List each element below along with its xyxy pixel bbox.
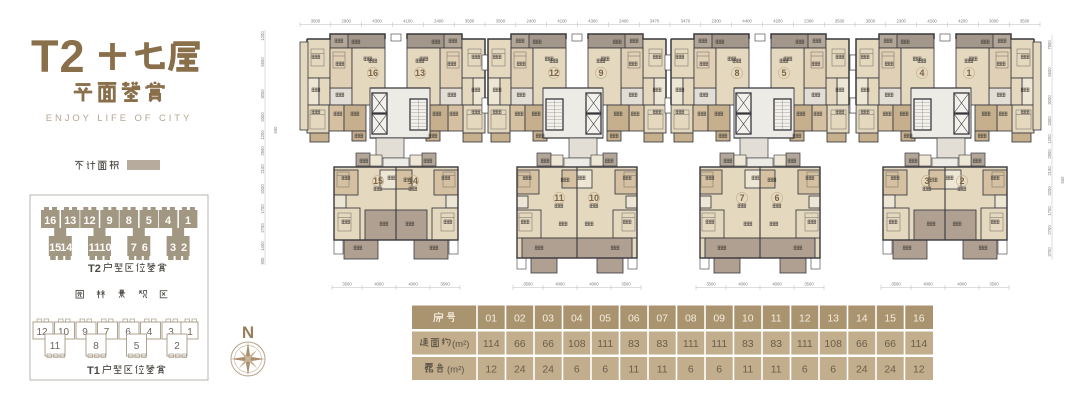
svg-text:66: 66: [884, 338, 896, 350]
svg-text:T1: T1: [87, 365, 100, 377]
svg-text:6: 6: [142, 242, 148, 254]
svg-text:3500: 3500: [706, 282, 716, 287]
svg-text:4100: 4100: [403, 19, 413, 24]
svg-text:11: 11: [50, 341, 61, 352]
svg-text:4000: 4000: [772, 282, 782, 287]
svg-text:1700: 1700: [1047, 206, 1052, 216]
svg-text:4000: 4000: [589, 282, 599, 287]
svg-text:3500: 3500: [621, 282, 631, 287]
svg-text:16: 16: [44, 215, 56, 227]
svg-text:108: 108: [568, 338, 586, 350]
svg-text:7900: 7900: [1047, 40, 1052, 50]
svg-text:04: 04: [571, 313, 583, 325]
svg-text:4300: 4300: [372, 19, 382, 24]
svg-text:13: 13: [64, 215, 76, 227]
svg-text:4300: 4300: [588, 19, 598, 24]
svg-text:1200: 1200: [1047, 134, 1052, 144]
svg-text:3300: 3300: [1047, 116, 1052, 126]
svg-text:11: 11: [628, 364, 639, 376]
svg-text:2900: 2900: [1047, 149, 1052, 159]
svg-text:12: 12: [913, 364, 925, 376]
svg-text:12: 12: [799, 313, 811, 325]
svg-text:111: 111: [683, 338, 699, 350]
svg-text:24: 24: [514, 364, 526, 376]
svg-text:12: 12: [83, 215, 95, 227]
svg-text:2900: 2900: [260, 146, 265, 156]
svg-text:4000: 4000: [923, 282, 933, 287]
svg-text:12: 12: [485, 364, 497, 376]
svg-text:2700: 2700: [260, 223, 265, 233]
svg-text:2300: 2300: [712, 19, 722, 24]
svg-text:3500: 3500: [440, 282, 450, 287]
svg-text:01: 01: [485, 313, 497, 325]
svg-text:1200: 1200: [260, 31, 265, 41]
svg-text:6: 6: [830, 364, 836, 376]
svg-text:600: 600: [273, 126, 278, 134]
svg-text:24: 24: [856, 364, 868, 376]
svg-text:14: 14: [856, 313, 868, 325]
svg-text:6: 6: [774, 193, 779, 203]
svg-text:111: 111: [711, 338, 727, 350]
svg-text:02: 02: [514, 313, 526, 325]
svg-text:T2: T2: [88, 263, 101, 275]
svg-text:4200: 4200: [773, 19, 783, 24]
svg-text:05: 05: [599, 313, 611, 325]
svg-text:4000: 4000: [738, 282, 748, 287]
svg-text:3470: 3470: [650, 19, 660, 24]
svg-text:600: 600: [1060, 176, 1065, 184]
svg-text:16: 16: [913, 313, 925, 325]
svg-text:3700: 3700: [1047, 247, 1052, 257]
svg-text:9: 9: [106, 215, 112, 227]
svg-text:2: 2: [174, 341, 180, 352]
svg-text:6: 6: [802, 364, 808, 376]
svg-text:08: 08: [685, 313, 697, 325]
svg-text:8: 8: [93, 341, 99, 352]
svg-text:3500: 3500: [804, 282, 814, 287]
svg-text:T2: T2: [31, 31, 86, 82]
svg-text:3500: 3500: [891, 282, 901, 287]
svg-text:8: 8: [734, 68, 739, 78]
svg-text:83: 83: [656, 338, 668, 350]
svg-text:3470: 3470: [681, 19, 691, 24]
svg-text:3500: 3500: [496, 19, 506, 24]
svg-text:66: 66: [856, 338, 868, 350]
svg-text:1: 1: [966, 68, 971, 78]
svg-text:10: 10: [99, 242, 111, 254]
svg-text:4000: 4000: [374, 282, 384, 287]
svg-text:111: 111: [797, 338, 813, 350]
svg-text:4100: 4100: [557, 19, 567, 24]
svg-text:2300: 2300: [804, 19, 814, 24]
svg-text:07: 07: [656, 313, 668, 325]
svg-text:7: 7: [739, 193, 744, 203]
svg-text:11: 11: [771, 313, 782, 325]
svg-text:3000: 3000: [989, 19, 999, 24]
svg-text:83: 83: [628, 338, 640, 350]
svg-text:3500: 3500: [523, 282, 533, 287]
svg-text:3500: 3500: [465, 19, 475, 24]
svg-text:06: 06: [628, 313, 640, 325]
svg-text:1700: 1700: [260, 204, 265, 214]
svg-text:2100: 2100: [260, 164, 265, 174]
svg-text:6: 6: [574, 364, 580, 376]
svg-text:10: 10: [742, 313, 754, 325]
svg-text:114: 114: [483, 338, 500, 350]
svg-text:15: 15: [884, 313, 896, 325]
svg-text:4200: 4200: [927, 19, 937, 24]
svg-text:3500: 3500: [866, 19, 876, 24]
svg-text:13: 13: [415, 68, 425, 78]
svg-text:5: 5: [781, 68, 786, 78]
svg-text:24: 24: [542, 364, 554, 376]
svg-text:83: 83: [770, 338, 782, 350]
svg-text:3500: 3500: [1020, 19, 1030, 24]
svg-text:24: 24: [884, 364, 896, 376]
svg-text:900: 900: [260, 257, 265, 265]
svg-text:5: 5: [146, 215, 152, 227]
svg-text:111: 111: [597, 338, 613, 350]
svg-text:3200: 3200: [1047, 186, 1052, 196]
svg-text:ENJOY LIFE OF CITY: ENJOY LIFE OF CITY: [46, 113, 193, 124]
svg-text:4200: 4200: [958, 19, 968, 24]
svg-text:12: 12: [549, 68, 559, 78]
svg-text:14: 14: [60, 242, 73, 254]
svg-text:4: 4: [165, 215, 172, 227]
svg-text:3200: 3200: [260, 184, 265, 194]
svg-text:11: 11: [742, 364, 753, 376]
svg-text:1: 1: [187, 327, 193, 338]
svg-text:4: 4: [147, 327, 153, 338]
svg-text:108: 108: [824, 338, 842, 350]
svg-text:3: 3: [170, 242, 176, 254]
svg-text:5500: 5500: [260, 57, 265, 67]
svg-text:4000: 4000: [408, 282, 418, 287]
svg-text:14: 14: [408, 176, 418, 186]
svg-text:4400: 4400: [742, 19, 752, 24]
svg-text:3300: 3300: [260, 112, 265, 122]
svg-text:3500: 3500: [311, 19, 321, 24]
svg-text:10: 10: [589, 193, 599, 203]
svg-text:5: 5: [134, 341, 140, 352]
svg-text:1400: 1400: [260, 241, 265, 251]
svg-text:16: 16: [368, 68, 378, 78]
svg-text:4: 4: [919, 68, 924, 78]
svg-text:114: 114: [910, 338, 927, 350]
svg-text:(m²): (m²): [452, 339, 469, 350]
svg-text:2900: 2900: [342, 19, 352, 24]
svg-text:66: 66: [542, 338, 554, 350]
svg-text:(m²): (m²): [447, 365, 464, 376]
svg-text:83: 83: [742, 338, 754, 350]
svg-text:8: 8: [126, 215, 132, 227]
svg-text:2400: 2400: [434, 19, 444, 24]
svg-text:11: 11: [554, 193, 564, 203]
svg-text:13: 13: [827, 313, 839, 325]
svg-text:2700: 2700: [1047, 225, 1052, 235]
svg-text:03: 03: [542, 313, 554, 325]
svg-text:3000: 3000: [260, 89, 265, 99]
svg-text:4000: 4000: [555, 282, 565, 287]
svg-text:2300: 2300: [897, 19, 907, 24]
svg-text:6: 6: [688, 364, 694, 376]
svg-text:9: 9: [598, 68, 603, 78]
svg-text:3500: 3500: [342, 282, 352, 287]
svg-text:1200: 1200: [260, 130, 265, 140]
svg-text:1: 1: [185, 215, 191, 227]
svg-text:2400: 2400: [527, 19, 537, 24]
svg-text:N: N: [242, 323, 254, 342]
svg-text:2100: 2100: [1047, 166, 1052, 176]
svg-text:3500: 3500: [835, 19, 845, 24]
svg-text:3500: 3500: [989, 282, 999, 287]
svg-text:11: 11: [657, 364, 668, 376]
svg-text:2: 2: [959, 176, 964, 186]
svg-text:2400: 2400: [619, 19, 629, 24]
svg-text:15: 15: [373, 176, 383, 186]
svg-text:2: 2: [181, 242, 187, 254]
svg-text:3: 3: [924, 176, 929, 186]
svg-text:3000: 3000: [1047, 95, 1052, 105]
svg-text:6: 6: [602, 364, 608, 376]
svg-text:6: 6: [716, 364, 722, 376]
svg-text:09: 09: [713, 313, 725, 325]
svg-text:4000: 4000: [957, 282, 967, 287]
svg-text:11: 11: [771, 364, 782, 376]
svg-text:66: 66: [514, 338, 526, 350]
svg-text:7: 7: [131, 242, 137, 254]
svg-text:5500: 5500: [1047, 67, 1052, 77]
